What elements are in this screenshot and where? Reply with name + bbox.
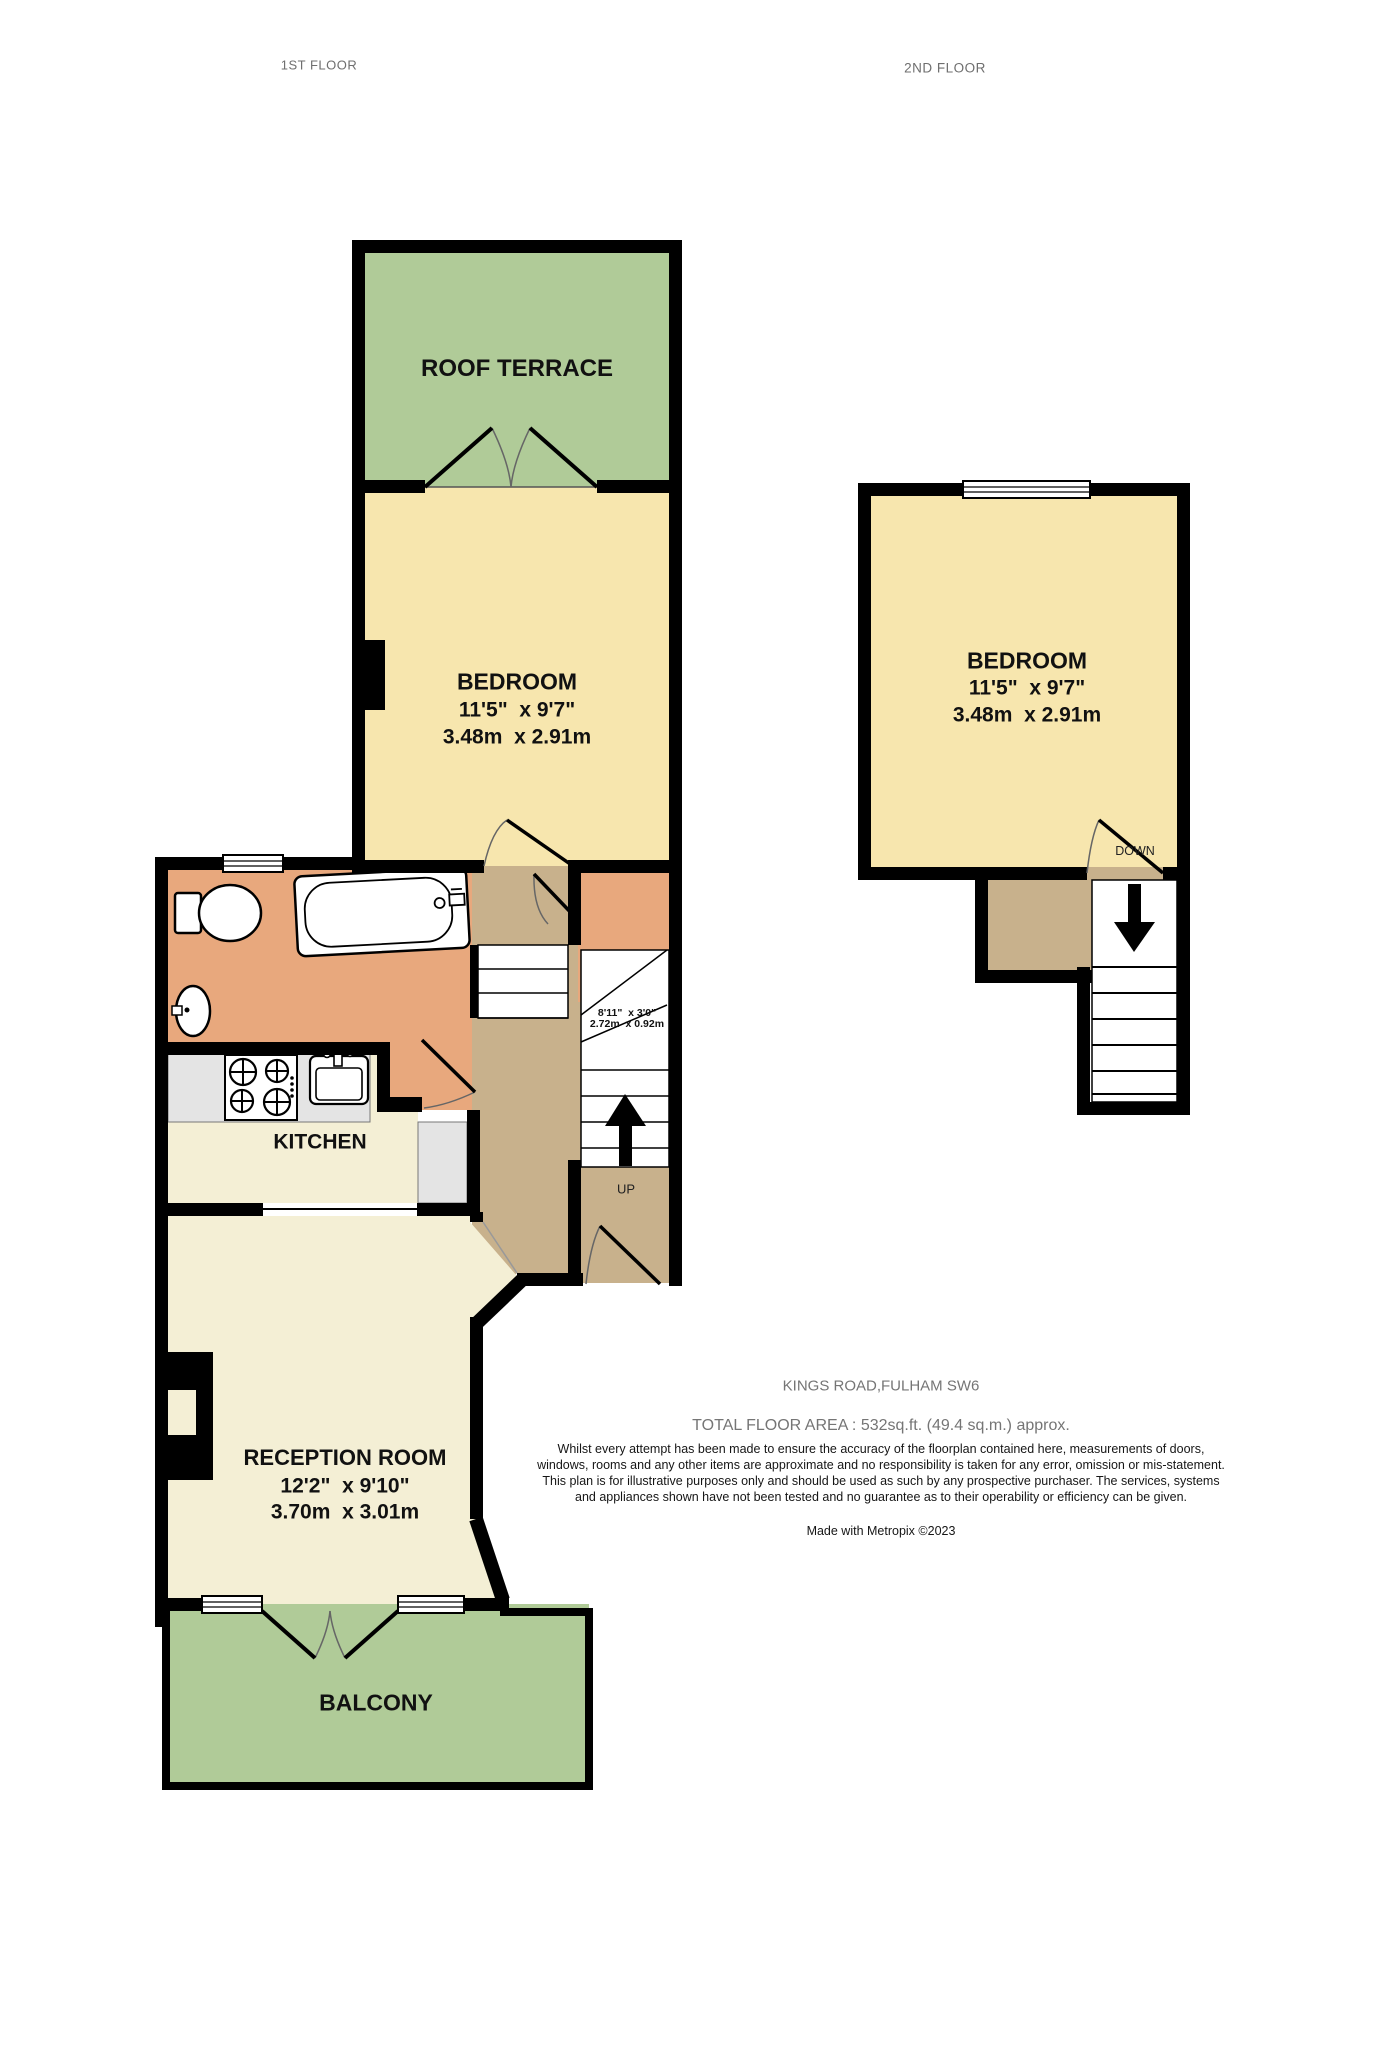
- room-label-reception: RECEPTION ROOM: [244, 1447, 447, 1469]
- bathtub-icon: [294, 868, 470, 957]
- bedroom2-window: [963, 481, 1090, 498]
- address-text: KINGS ROAD,FULHAM SW6: [783, 1379, 980, 1394]
- stairs-dims-imperial: 8'11" x 3'0": [598, 1008, 656, 1019]
- bedroom2-dims-metric: 3.48m x 2.91m: [953, 705, 1101, 726]
- bedroom1-dims-metric: 3.48m x 2.91m: [443, 727, 591, 748]
- total-floor-area-text: TOTAL FLOOR AREA : 532sq.ft. (49.4 sq.m.…: [692, 1418, 1070, 1434]
- reception-dims-imperial: 12'2" x 9'10": [280, 1476, 409, 1497]
- bathroom-window: [223, 855, 283, 872]
- reception-window-left: [202, 1596, 262, 1613]
- first-floor-label: 1ST FLOOR: [281, 59, 358, 72]
- hob-icon: [225, 1055, 297, 1120]
- second-floor-label: 2ND FLOOR: [904, 61, 986, 75]
- stairs-down-label: DOWN: [1115, 845, 1155, 858]
- bedroom1-dims-imperial: 11'5" x 9'7": [459, 700, 575, 721]
- bedroom2-dims-imperial: 11'5" x 9'7": [969, 678, 1085, 699]
- reception-window-right: [398, 1596, 464, 1613]
- kitchen-sink-icon: [310, 1050, 368, 1105]
- room-label-bedroom2: BEDROOM: [967, 650, 1087, 673]
- room-label-kitchen: KITCHEN: [273, 1132, 366, 1153]
- reception-dims-metric: 3.70m x 3.01m: [271, 1502, 419, 1523]
- room-label-bedroom1: BEDROOM: [457, 671, 577, 694]
- floorplan-canvas: [0, 0, 1394, 2048]
- stairs-up-label: UP: [617, 1183, 635, 1196]
- credit-text: Made with Metropix ©2023: [531, 1524, 1231, 1538]
- toilet-icon: [175, 885, 261, 941]
- floorplan-page: 1ST FLOOR 2ND FLOOR ROOF TERRACE BEDROOM…: [0, 0, 1394, 2048]
- disclaimer-text: Whilst every attempt has been made to en…: [531, 1441, 1231, 1505]
- room-label-balcony: BALCONY: [319, 1692, 433, 1715]
- room-label-roof-terrace: ROOF TERRACE: [421, 357, 613, 381]
- stairs-dims-metric: 2.72m x 0.92m: [590, 1019, 664, 1030]
